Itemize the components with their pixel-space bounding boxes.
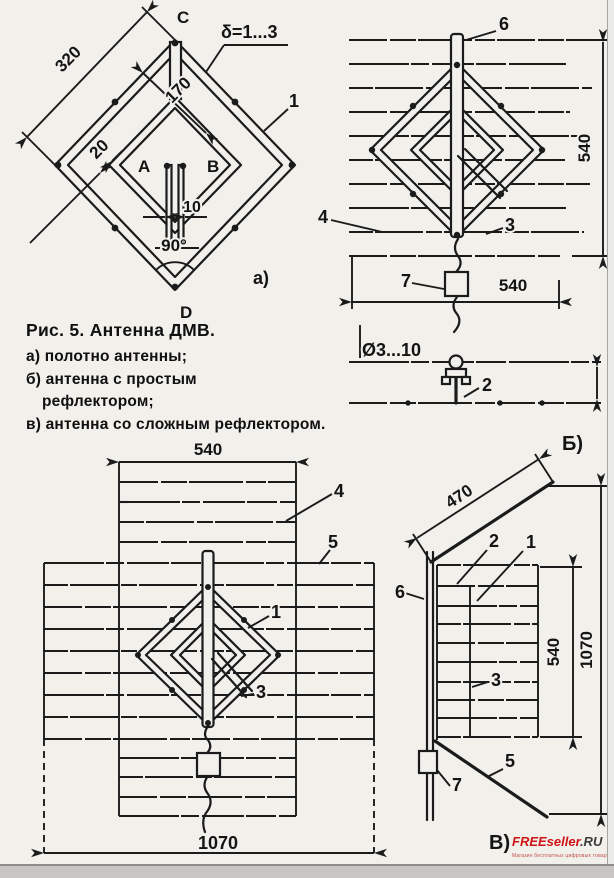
- label-part-1: 1: [289, 91, 299, 111]
- leader-line: [466, 31, 496, 40]
- caption-line-v: в) антенна со сложным рефлектором.: [26, 414, 366, 437]
- stand-foot: [462, 377, 470, 384]
- leader-line: [331, 220, 382, 232]
- matching-box: [419, 751, 437, 773]
- dim-470: 470: [442, 481, 476, 512]
- logo-brand: FREEseller: [512, 834, 580, 849]
- caption-line-a: а) полотно антенны;: [26, 346, 366, 369]
- label-part-3: 3: [256, 682, 266, 702]
- dim-540-horizontal: 540: [499, 276, 527, 295]
- stand-bracket: [446, 369, 466, 377]
- scan-edge-bottom: [0, 864, 614, 878]
- label-part-3: 3: [505, 215, 515, 235]
- dim-540-vertical: 540: [575, 134, 594, 162]
- diagram-v-front: 540 1070 4 5 1 3: [44, 440, 374, 853]
- label-part-3: 3: [491, 670, 501, 690]
- ext-line: [413, 534, 431, 562]
- diagram-b-side: Ø3...10 2 Б): [349, 325, 601, 455]
- mast-section-circle: [450, 356, 463, 369]
- diagram-b-caption: Б): [562, 433, 583, 455]
- leader-line: [206, 45, 224, 72]
- leader-line: [319, 550, 330, 564]
- label-part-7: 7: [401, 271, 411, 291]
- scan-edge-right: [607, 0, 614, 864]
- dim-320: 320: [51, 42, 84, 75]
- feed-strip-left: [167, 165, 172, 243]
- dim-1070-bottom: 1070: [198, 833, 238, 853]
- leader-line: [405, 593, 424, 599]
- leader-line: [477, 551, 523, 601]
- label-part-6: 6: [499, 14, 509, 34]
- label-part-1: 1: [271, 602, 281, 622]
- leader-line: [464, 388, 479, 397]
- dim-170: 170: [161, 73, 194, 106]
- diagram-v-caption: В): [489, 832, 510, 854]
- stand-foot: [442, 377, 450, 384]
- ext-line: [535, 454, 553, 482]
- rod-dot: [497, 400, 502, 405]
- leader-line: [489, 769, 503, 776]
- rod-dot: [539, 400, 544, 405]
- dim-540-top: 540: [194, 440, 222, 459]
- logo-tagline: Магазин бесплатных цифровых товаров: [512, 850, 612, 863]
- caption-line-b2: рефлектором;: [42, 391, 366, 414]
- label-part-2: 2: [482, 375, 492, 395]
- mast: [203, 551, 214, 727]
- dim-10: 10: [183, 199, 201, 216]
- screenshot-root: 320 170 20 10 90° C D A B 1 δ=1...3 а): [0, 0, 614, 878]
- antenna-figure: 320 170 20 10 90° C D A B 1 δ=1...3 а): [0, 0, 614, 878]
- dim-line-320: [27, 12, 147, 137]
- dim-rod-diameter: Ø3...10: [362, 340, 421, 360]
- diagram-a-panel: 320 170 20 10 90° C D A B 1 δ=1...3 а): [22, 7, 299, 322]
- label-part-4: 4: [318, 207, 328, 227]
- reflector-ladder: [437, 565, 538, 740]
- diagram-b-front: 540 540 6 4 3 7: [318, 14, 611, 332]
- rod-dot: [405, 400, 410, 405]
- dim-line-470: [417, 459, 539, 538]
- leader-line: [437, 770, 450, 786]
- dim-1070-total: 1070: [577, 631, 596, 669]
- label-part-5: 5: [505, 751, 515, 771]
- matching-box: [445, 272, 468, 296]
- label-point-a: A: [138, 157, 150, 176]
- label-point-c: C: [177, 8, 189, 27]
- figure-title: Рис. 5. Антенна ДМВ.: [26, 320, 366, 341]
- leader-line: [286, 494, 332, 521]
- dim-20-arrow: [30, 173, 100, 243]
- leader-line: [248, 616, 269, 628]
- dim-90deg: 90°: [161, 236, 187, 255]
- logo-tld: .RU: [580, 834, 602, 849]
- dim-540-center: 540: [544, 638, 563, 666]
- ext-line: [142, 7, 175, 40]
- reflector-rods: [349, 40, 611, 256]
- label-part-7: 7: [452, 775, 462, 795]
- inner-rhombus-strip: [109, 97, 241, 233]
- site-watermark: FREEseller.RU Магазин бесплатных цифровы…: [512, 835, 612, 863]
- leader-line: [457, 550, 487, 584]
- matching-box: [197, 753, 220, 776]
- diagram-v-side: 470 540 1070 6 2 1 3 5 7 В): [395, 454, 610, 854]
- label-part-5: 5: [328, 532, 338, 552]
- diagram-a-caption: а): [253, 268, 269, 288]
- caption-line-b1: б) антенна с простым: [26, 369, 366, 392]
- label-part-6: 6: [395, 582, 405, 602]
- label-part-4: 4: [334, 481, 344, 501]
- cable: [203, 776, 210, 832]
- figure-caption: Рис. 5. Антенна ДМВ. а) полотно антенны;…: [26, 320, 366, 436]
- label-point-b: B: [207, 157, 219, 176]
- label-thickness: δ=1...3: [221, 22, 277, 42]
- leader-line: [264, 109, 288, 131]
- label-part-2: 2: [489, 531, 499, 551]
- leader-line: [412, 283, 444, 289]
- label-part-1: 1: [526, 532, 536, 552]
